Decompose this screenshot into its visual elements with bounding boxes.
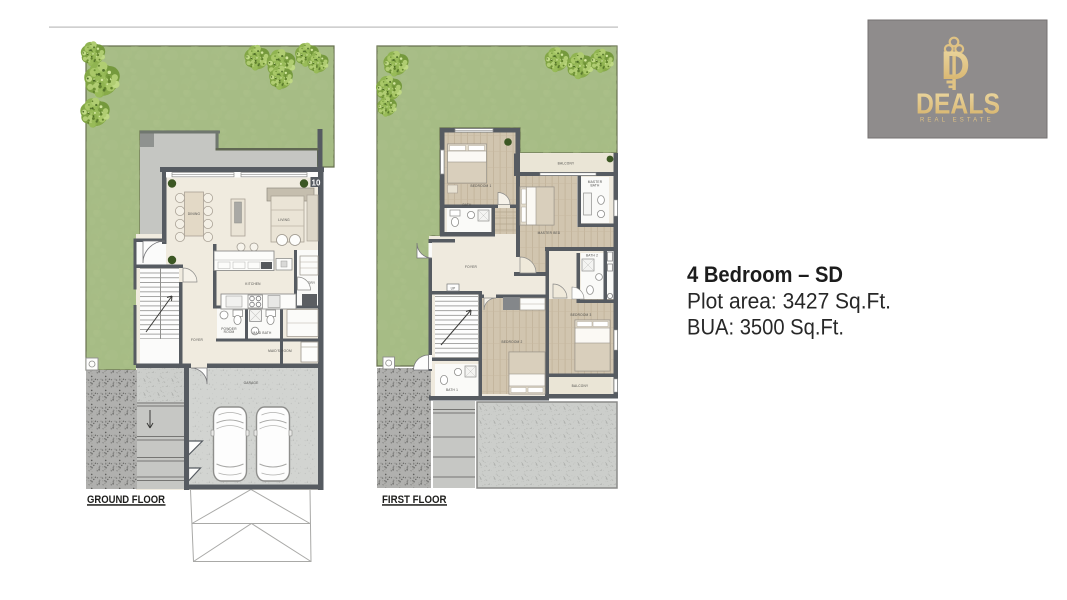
svg-text:DINING: DINING xyxy=(188,212,201,216)
svg-text:LIVING: LIVING xyxy=(278,218,290,222)
svg-text:DEALS: DEALS xyxy=(916,89,1000,121)
svg-text:MAID'S ROOM: MAID'S ROOM xyxy=(268,349,292,353)
svg-text:FOYER: FOYER xyxy=(465,265,477,269)
svg-text:D: D xyxy=(941,44,970,88)
svg-text:BEDROOM 2: BEDROOM 2 xyxy=(502,340,523,344)
svg-text:BEDROOM 1: BEDROOM 1 xyxy=(471,184,492,188)
svg-text:BATH 1: BATH 1 xyxy=(446,388,458,392)
svg-text:BEDROOM 3: BEDROOM 3 xyxy=(571,313,592,317)
svg-text:BALCONY: BALCONY xyxy=(558,162,575,166)
svg-text:KITCHEN: KITCHEN xyxy=(245,282,261,286)
svg-text:BUA: 3500 Sq.Ft.: BUA: 3500 Sq.Ft. xyxy=(687,315,844,340)
svg-text:BATH: BATH xyxy=(462,203,472,207)
svg-text:4 Bedroom – SD: 4 Bedroom – SD xyxy=(687,262,843,287)
svg-text:UP: UP xyxy=(451,287,456,291)
svg-text:GARAGE: GARAGE xyxy=(244,381,259,385)
svg-text:MAID BATH: MAID BATH xyxy=(253,331,272,335)
svg-text:10: 10 xyxy=(312,179,321,188)
svg-text:BALCONY: BALCONY xyxy=(572,384,589,388)
svg-text:MASTER BED: MASTER BED xyxy=(538,231,561,235)
svg-text:BATH 2: BATH 2 xyxy=(586,254,598,258)
svg-text:BATH: BATH xyxy=(590,184,600,188)
svg-text:REAL ESTATE: REAL ESTATE xyxy=(920,118,994,124)
svg-text:FOYER: FOYER xyxy=(191,338,203,342)
svg-text:ROOM: ROOM xyxy=(224,330,235,334)
svg-text:Plot area: 3427 Sq.Ft.: Plot area: 3427 Sq.Ft. xyxy=(687,289,891,314)
